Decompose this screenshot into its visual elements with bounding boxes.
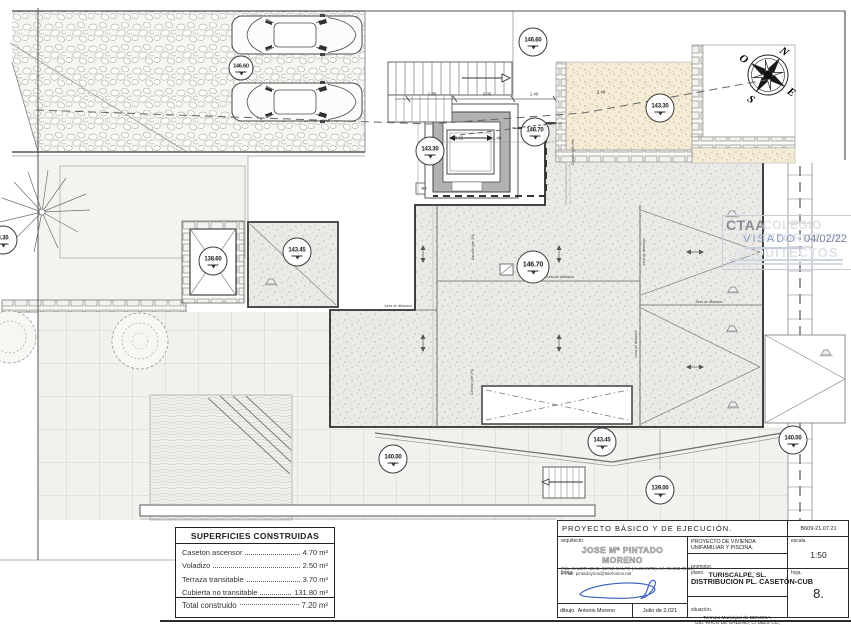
architect-cell: arquitecto. JOSE Mª PINTADO MORENO Pda. … [558,537,687,569]
car-icon [232,81,362,123]
dimension-label: 3.40 [597,90,606,95]
plan-title: DISTRIBUCION PL. CASETÓN-CUB [691,577,784,586]
signature-icon [561,576,681,604]
elevation-marker: 146.70 [521,118,550,147]
elevation-marker: 143.30 [646,94,675,123]
plan-label: plano. [691,570,784,576]
dimension-label: 0.65 [455,136,464,141]
dimension-label: 1.85 [428,92,437,97]
floor-plan-sheet: N E S O 146.60 146.60 143.30 146.70 143.… [0,0,851,625]
promoter-cell: promotor. TURISCALPE, SL. [687,554,787,569]
junta-label: Junta de dilatación [384,304,412,308]
level-datum-icon [528,271,539,272]
gutter-label: Canalón (pte 2%) [571,139,575,165]
parking-area [10,11,365,156]
sheet-label: hoja. [791,570,846,576]
stamp-name-line [745,247,803,249]
level-datum-icon [597,446,608,447]
level-datum-icon [528,46,539,47]
project-type: PROYECTO BÁSICO Y DE EJECUCIÓN. [558,521,787,537]
areas-table-title: SUPERFICIES CONSTRUIDAS [182,531,328,541]
stamp-ref-line [729,263,843,265]
drawn-by-cell: dibujo. Antonio Moreno [558,604,633,618]
gutter-label: Canalón (pte 2%) [471,234,475,260]
level-datum-icon [788,444,799,445]
dimension-label: 1.40 [493,136,502,141]
car-icon [232,14,362,56]
stamp-status: VISADO [743,233,797,245]
table-row: Terraza transitable3.70 m² [182,570,328,583]
junta-label: Junta de dilatación [546,275,574,279]
location-label: situación. [691,607,712,613]
bush-icon [112,313,168,369]
location-cell: situación. Termino Municipal de BENISSA.… [687,596,787,618]
stamp-org-line: COLEGIO [763,218,822,232]
gutter-label: Canalón (pte 2%) [470,369,474,395]
table-row: Voladizo2.50 m² [182,557,328,570]
embankment [150,395,292,520]
sheet-cell: hoja. 8. [787,569,849,618]
elevation-marker: 146.60 [229,56,254,81]
stamp-date: 04/02/22 [804,233,847,245]
level-datum-icon [388,463,399,464]
project-title: PROYECTO DE VIVIENDA UNIFAMILIAR Y PISCI… [687,537,787,554]
scale-cell: escala 1:50 [787,537,849,569]
detail-ref-label: D2 [421,186,426,191]
project-ref: B609-21.07.21 [787,521,849,537]
table-row: Cubierta no transitable131.80 m² [182,584,328,597]
signature-cell: firma. dibujo. Antonio Moreno Julio de 2… [558,569,687,618]
elevation-marker: 138.60 [199,247,228,276]
level-datum-icon [292,256,303,257]
architect-label: arquitecto. [561,538,684,544]
dimension-label: 1.40 [530,92,539,97]
plan-title-cell: plano. DISTRIBUCION PL. CASETÓN-CUB [687,569,787,596]
elevation-marker: 146.70 [517,251,550,284]
level-datum-icon [425,155,436,156]
date-cell: Julio de 2.021 [633,604,687,618]
bush-icon [0,311,36,363]
level-datum-icon [236,72,247,73]
stamp-abbr: CTAA [726,217,766,233]
elevation-marker: 143.45 [283,238,312,267]
areas-table: SUPERFICIES CONSTRUIDAS Caseton ascensor… [175,527,335,618]
walk-band [140,505,595,516]
junta-label: Junta de dilatación [634,330,638,358]
garden-wall [2,300,186,312]
elevation-marker: 143.45 [588,428,617,457]
junta-label: Junta de dilatación [695,300,723,304]
elevation-marker: 139.00 [646,476,675,505]
dimension-label: 2.05 [483,92,492,97]
sheet-number: 8. [791,586,846,601]
architect-name: JOSE Mª PINTADO MORENO [561,545,684,565]
stairs-bottom [542,467,585,498]
upper-right-garden: N E S O [556,44,798,163]
scale-value: 1:50 [791,550,846,560]
junta-label: Junta de dilatación [642,238,646,266]
table-total-row: Total construido7.20 m² [182,598,328,613]
level-datum-icon [530,136,541,137]
stamp-ref-line [729,259,843,261]
level-datum-icon [655,112,666,113]
sheet-bottom-edge [160,620,851,622]
level-datum-icon [655,494,666,495]
elevation-marker: 140.00 [779,426,808,455]
level-datum-icon [208,265,219,266]
elevation-marker: 143.30 [416,137,445,166]
title-block: PROYECTO BÁSICO Y DE EJECUCIÓN. B609-21.… [557,520,849,618]
visado-stamp: COLEGIO TERRITORIAL DE ARQUITECTOS CTAA … [722,215,851,270]
level-datum-icon [0,244,9,245]
table-row: Caseton ascensor4.70 m² [182,544,328,557]
scale-label: escala [791,538,846,544]
elevation-marker: 146.60 [519,28,548,57]
elevation-marker: 140.00 [379,445,408,474]
